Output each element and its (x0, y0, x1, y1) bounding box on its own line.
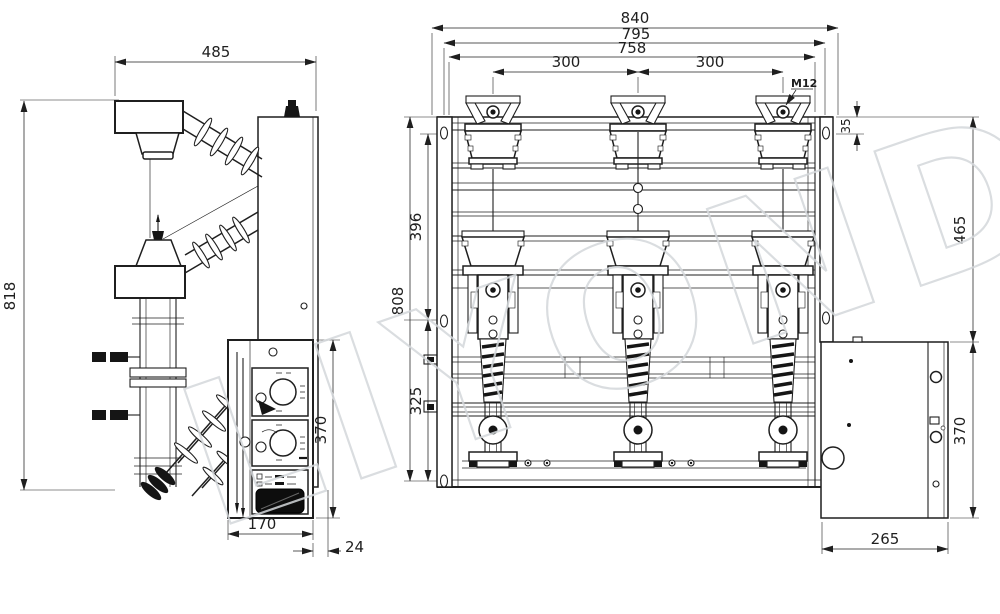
dim-label-24: 24 (345, 538, 364, 556)
dim-label-300-right: 300 (696, 53, 725, 71)
dim-label-485: 485 (202, 43, 231, 61)
dim-label-300-left: 300 (552, 53, 581, 71)
dim-side-height: 818 (1, 100, 119, 490)
dim-label-265: 265 (871, 530, 900, 548)
box-knob-lower (931, 432, 942, 443)
dim-label-818: 818 (1, 282, 19, 311)
bolt-label-m12: M12 (791, 77, 817, 90)
dim-box-height: 370 (950, 342, 979, 518)
dim-label-370-box: 370 (951, 417, 969, 446)
dim-pole-pitch: 300 300 (493, 53, 783, 94)
mechanism-box (821, 337, 948, 518)
box-port-hole (822, 447, 844, 469)
technical-drawing: 485 818 370 170 24 (0, 0, 1000, 614)
dim-label-758: 758 (618, 39, 647, 57)
dim-box-width: 265 (822, 522, 948, 554)
dim-label-396: 396 (407, 213, 425, 242)
box-knob-upper (931, 372, 942, 383)
upper-terminal-assembly (115, 101, 262, 238)
